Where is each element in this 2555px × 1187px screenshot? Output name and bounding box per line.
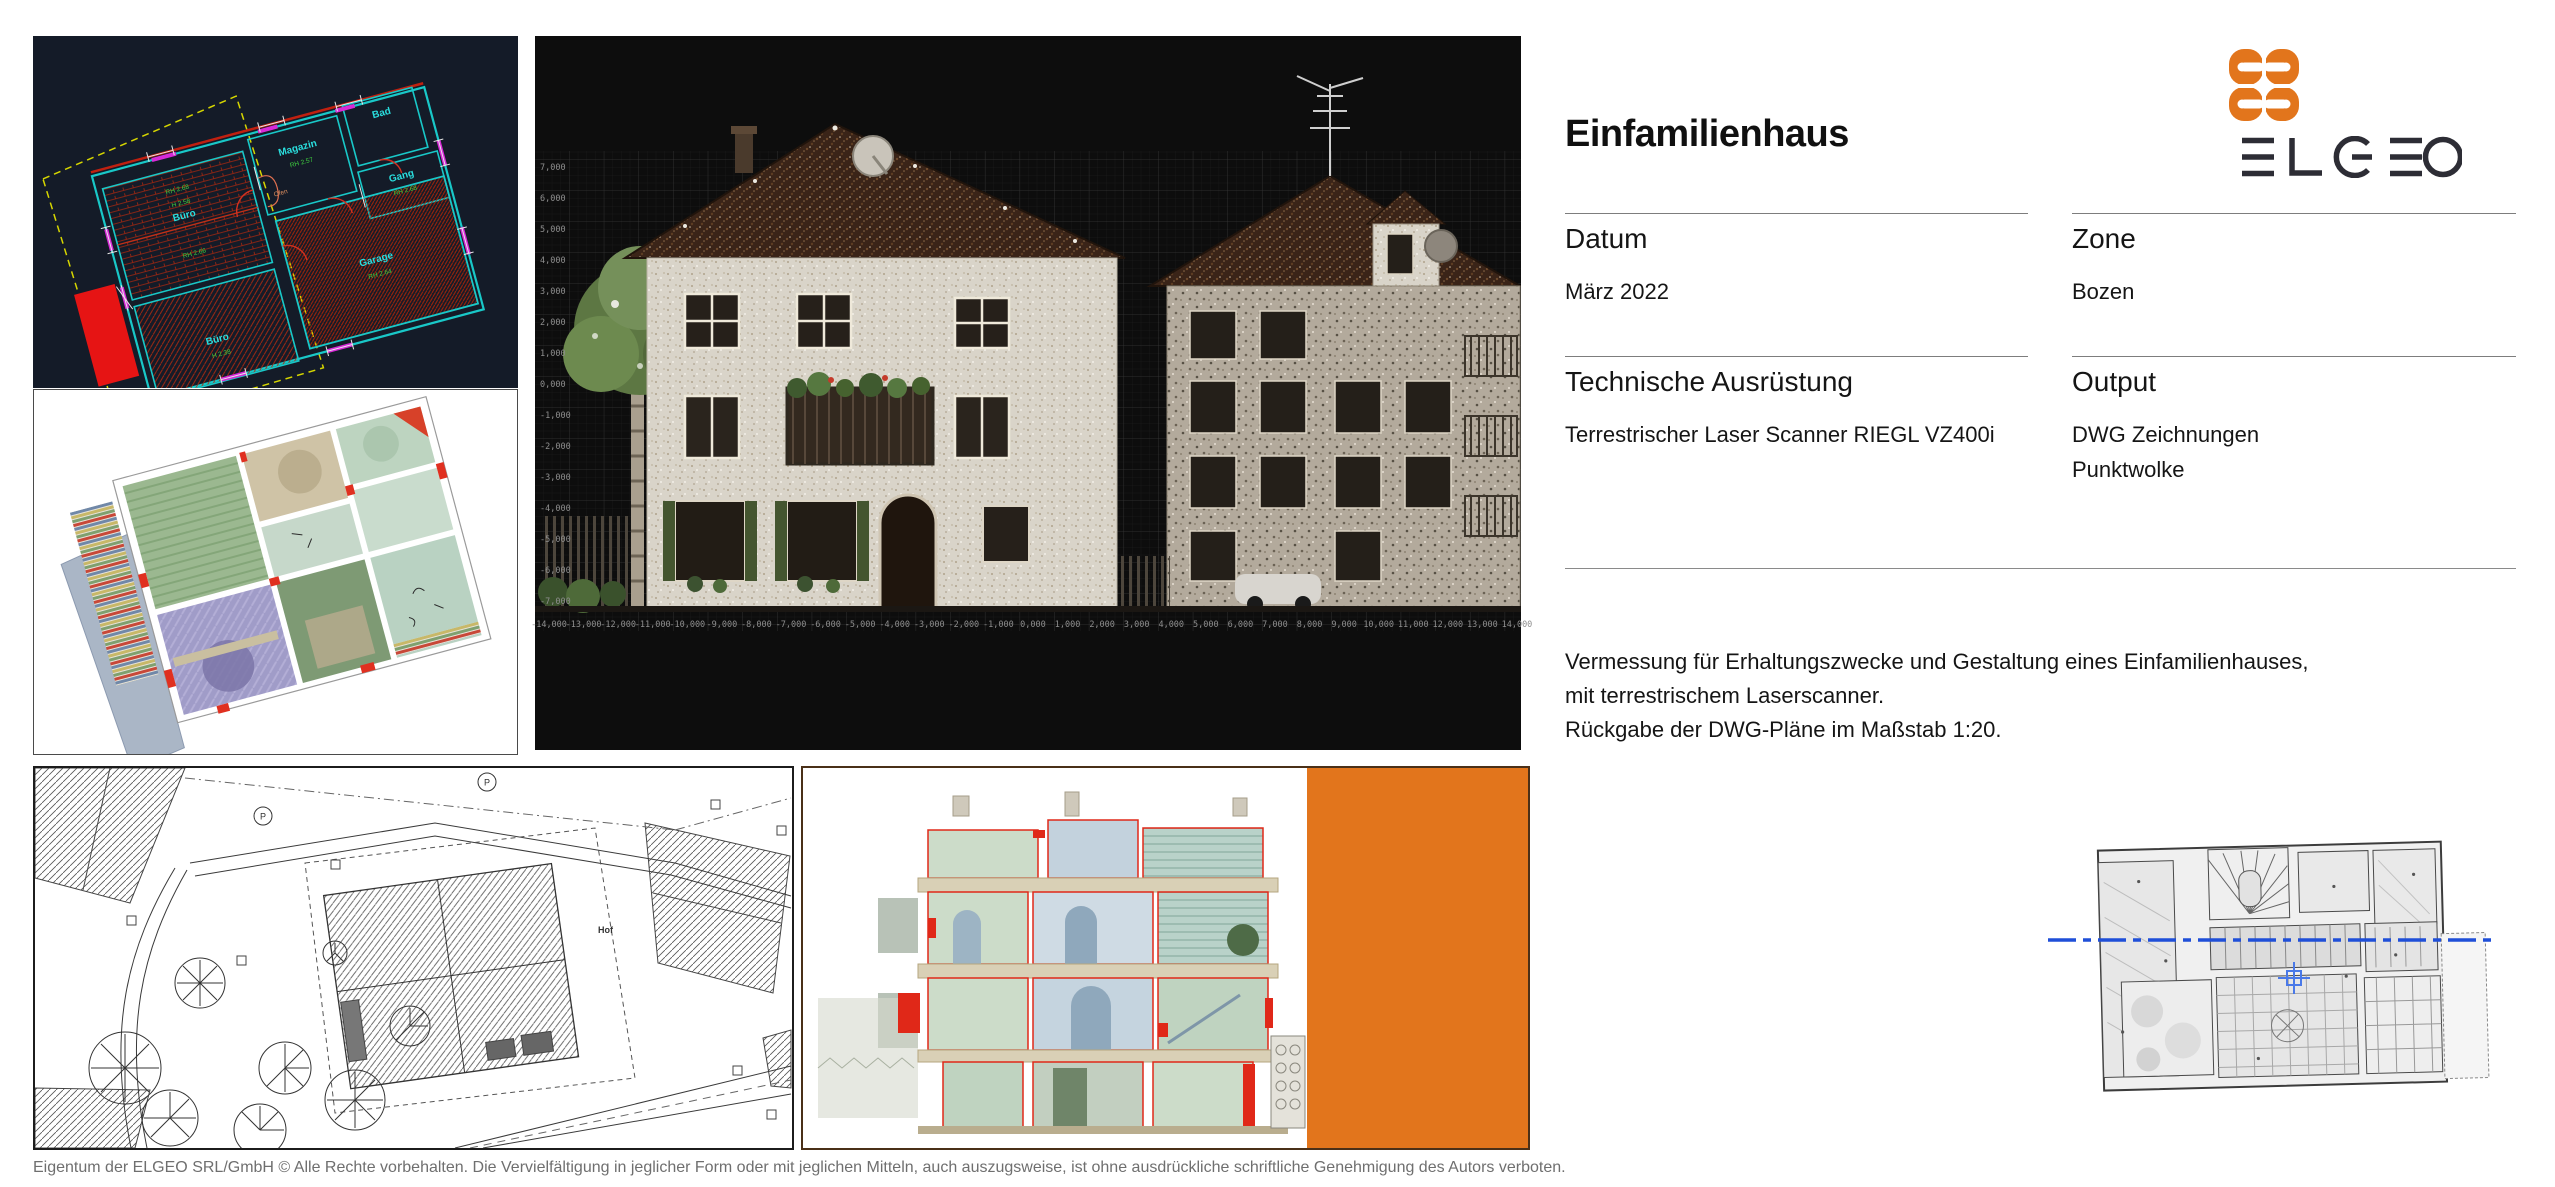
orange-block — [1307, 768, 1528, 1148]
elgeo-logo — [2228, 48, 2534, 124]
field-label: Technische Ausrüstung — [1565, 366, 2028, 398]
field-datum: Datum März 2022 — [1565, 213, 2028, 305]
pointcloud-facade-scene — [535, 36, 1521, 750]
elgeo-wordmark — [2240, 136, 2462, 178]
parking-label: P — [260, 812, 266, 822]
letter-G — [2336, 139, 2372, 176]
description-line: Vermessung für Erhaltungszwecke und Gest… — [1565, 645, 2525, 679]
field-value: Terrestrischer Laser Scanner RIEGL VZ400… — [1565, 422, 2028, 448]
field-label: Output — [2072, 366, 2516, 398]
grayscale-plan-drawing — [2046, 818, 2501, 1113]
field-label: Datum — [1565, 223, 2028, 255]
cad-floorplan-image: Büro Magazin Bad Gang Garage Büro RH 2.6… — [33, 36, 518, 388]
divider — [2072, 356, 2516, 357]
siteplan-image: P P Hof — [33, 766, 794, 1150]
field-zone: Zone Bozen — [2072, 213, 2516, 305]
field-value: Bozen — [2072, 279, 2516, 305]
letter-E — [2242, 141, 2274, 174]
field-value: DWG Zeichnungen — [2072, 422, 2516, 448]
divider — [2072, 213, 2516, 214]
field-value: März 2022 — [1565, 279, 2028, 305]
grayscale-plan-image — [2046, 818, 2501, 1113]
cross-section-image — [801, 766, 1530, 1150]
roof-hatch-bottomleft — [35, 1088, 150, 1148]
description-line: mit terrestrischem Laserscanner. — [1565, 679, 2525, 713]
field-value-2: Punktwolke — [2072, 457, 2516, 483]
divider — [1565, 356, 2028, 357]
colored-floorplan-image — [33, 389, 518, 755]
cad-floorplan-drawing: Büro Magazin Bad Gang Garage Büro RH 2.6… — [33, 36, 518, 388]
project-sheet: Büro Magazin Bad Gang Garage Büro RH 2.6… — [0, 0, 2555, 1187]
description-line: Rückgabe der DWG-Pläne im Maßstab 1:20. — [1565, 713, 2525, 747]
gate-fence — [1120, 556, 1170, 608]
field-label: Zone — [2072, 223, 2516, 255]
elgeo-logo-icon — [2228, 48, 2300, 122]
pointcloud-facade-viewer: -14,000-13,000-12,000-11,000-10,000-9,00… — [535, 36, 1521, 750]
section-divider — [1565, 568, 2516, 569]
hof-label: Hof — [598, 925, 614, 935]
field-output: Output DWG Zeichnungen Punktwolke — [2072, 356, 2516, 483]
copyright-footer: Eigentum der ELGEO SRL/GmbH © Alle Recht… — [33, 1159, 2483, 1177]
siteplan-drawing: P P Hof — [35, 768, 792, 1148]
divider — [1565, 213, 2028, 214]
colored-floorplan-drawing — [34, 390, 517, 754]
dormer-dish — [1425, 230, 1457, 262]
field-technische-ausruestung: Technische Ausrüstung Terrestrischer Las… — [1565, 356, 2028, 448]
page-title: Einfamilienhaus — [1565, 113, 1849, 156]
main-building-hatch — [324, 864, 579, 1089]
arched-door — [880, 495, 936, 608]
cross-section-drawing — [803, 768, 1528, 1148]
letter-E — [2390, 141, 2422, 174]
parking-label: P — [484, 778, 490, 788]
letter-O — [2426, 140, 2461, 175]
upper-windows — [685, 294, 1009, 348]
project-description: Vermessung für Erhaltungszwecke und Gest… — [1565, 645, 2525, 747]
letter-L — [2292, 138, 2322, 173]
